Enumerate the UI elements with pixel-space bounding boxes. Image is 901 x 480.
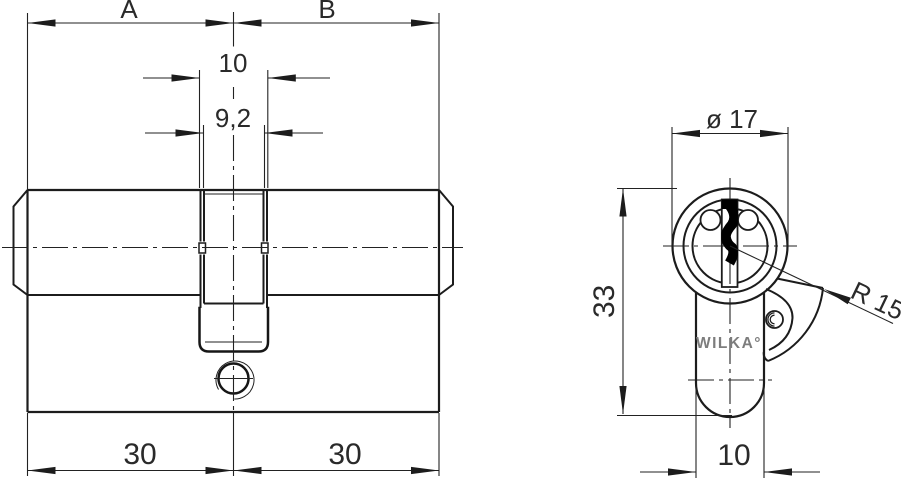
dim-body-width: 10 — [717, 439, 750, 472]
dim-a-label: A — [120, 0, 138, 24]
dim-b-label: B — [318, 0, 335, 24]
dim-cam-inner-width: 9,2 — [215, 103, 251, 133]
keyway-relief-right — [738, 210, 758, 230]
drawing-canvas: A B 10 9,2 30 30 — [0, 0, 901, 480]
keyway-relief-left — [701, 210, 721, 230]
dim-height: 33 — [588, 285, 621, 318]
dim-cam-slot-width: 10 — [219, 48, 248, 78]
dim-right-half-length: 30 — [328, 438, 361, 471]
brand-logo-text: WILKA° — [696, 335, 762, 352]
dim-diameter: ø 17 — [706, 104, 758, 134]
background — [0, 0, 901, 480]
dim-left-half-length: 30 — [123, 438, 156, 471]
technical-drawing-svg: A B 10 9,2 30 30 — [0, 0, 901, 480]
